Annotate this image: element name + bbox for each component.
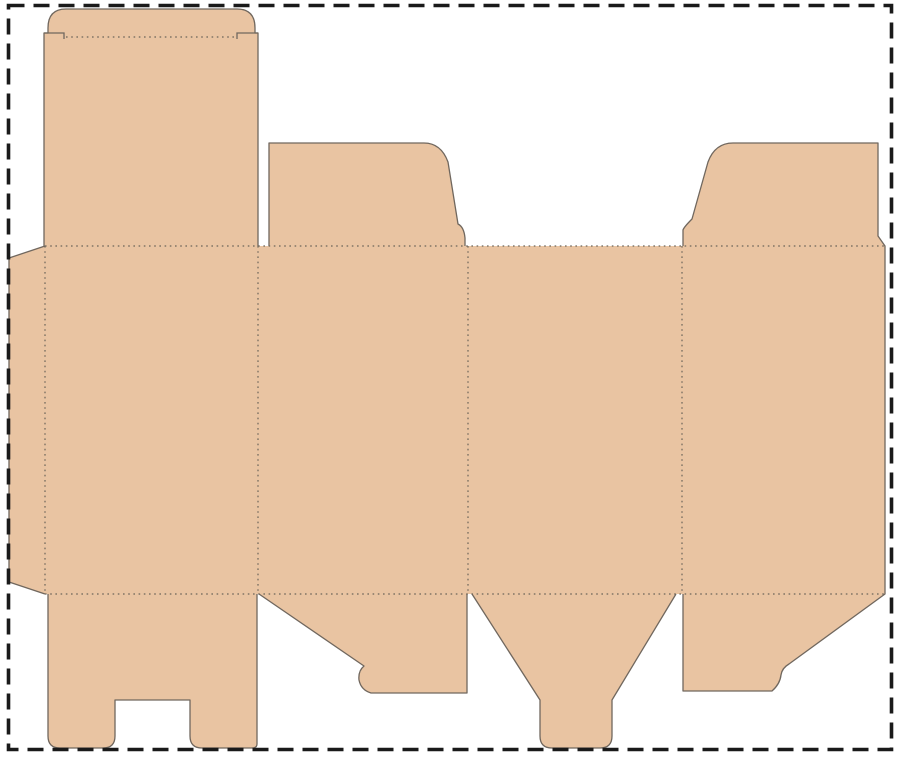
dieline-page <box>0 0 900 759</box>
carton-board-shape <box>9 9 885 748</box>
dieline-canvas <box>0 0 900 759</box>
